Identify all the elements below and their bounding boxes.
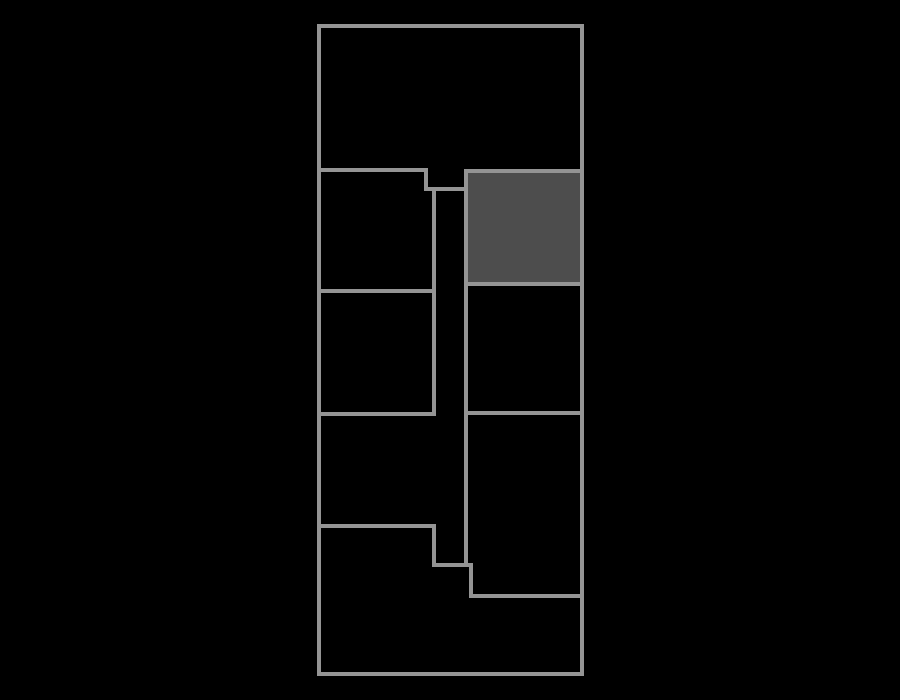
floorplan-canvas [0,0,900,700]
floor-plan [0,0,900,700]
highlighted-room[interactable] [466,171,582,284]
building-outline [319,26,582,674]
